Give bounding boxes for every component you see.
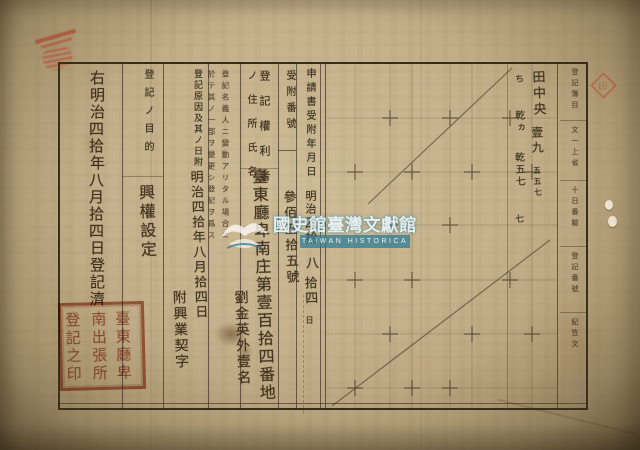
paper-hole bbox=[605, 200, 613, 210]
purpose-label: 登記ノ目的 bbox=[140, 69, 155, 159]
statement-handwritten-year: 四拾 bbox=[87, 121, 105, 155]
row-divider bbox=[560, 120, 586, 121]
application-date-day: 拾四 bbox=[299, 276, 319, 307]
statement-printed: 年 bbox=[88, 155, 104, 172]
watermark-org-name-en: TAIWAN HISTORICA bbox=[302, 238, 408, 245]
margin-text-segment: 登記簿目 bbox=[566, 68, 580, 112]
paper-sheet: 右明治四拾年八月拾四日登記濟 登記ノ目的 興權設定 登記原因及其ノ日附 明治四拾… bbox=[0, 0, 640, 450]
property-note-2: 乾ヵ bbox=[511, 110, 527, 135]
margin-text-segment: 登記番號 bbox=[566, 252, 580, 296]
property-note-3: 乾五七 bbox=[510, 152, 526, 189]
registry-seal: 臺東廳卑 南出張所 登記之印 bbox=[58, 301, 146, 391]
application-date-label: 申請書受附年月日 bbox=[302, 68, 317, 180]
seal-text-column: 南出張所 bbox=[88, 311, 111, 384]
margin-text-segment: 文一上省 bbox=[566, 126, 580, 170]
margin-text-segment: 紀笠文 bbox=[566, 318, 580, 351]
bird-logo-icon bbox=[219, 212, 269, 258]
statement-handwritten-date: 八月拾四 bbox=[87, 172, 105, 240]
margin-text-segment: 十日番驗 bbox=[566, 186, 580, 230]
property-location: 田中央 bbox=[527, 70, 548, 119]
statement-printed: 日登記濟 bbox=[88, 240, 104, 308]
seal-text-column: 登記之印 bbox=[62, 311, 85, 384]
purpose-value: 興權設定 bbox=[133, 184, 160, 261]
registration-statement: 右明治四拾年八月拾四日登記濟 bbox=[86, 70, 107, 308]
row-divider bbox=[122, 176, 163, 177]
watermark-org-name: 國史館臺灣文獻館 bbox=[273, 212, 421, 237]
property-sub-number: 五五七 bbox=[531, 166, 543, 199]
paper-hole bbox=[608, 216, 617, 227]
property-note-4: 七 bbox=[512, 214, 525, 223]
diamond-stamp-character: 印 bbox=[598, 80, 607, 93]
cause-label: 登記原因及其ノ日附 bbox=[192, 69, 205, 168]
watermark-banner: TAIWAN HISTORICA bbox=[300, 235, 410, 248]
row-divider bbox=[560, 246, 586, 247]
taiwan-historica-watermark: 國史館臺灣文獻館 TAIWAN HISTORICA bbox=[213, 206, 425, 260]
column-divider bbox=[163, 64, 164, 408]
column-divider bbox=[557, 64, 558, 408]
statement-printed: 右明治 bbox=[88, 70, 104, 121]
rights-holder-name: 劉金英外壹名 bbox=[230, 290, 253, 387]
row-divider bbox=[278, 150, 296, 151]
seal-text-column: 臺東廳卑 bbox=[112, 310, 135, 383]
diamond-stamp: 印 bbox=[590, 72, 617, 99]
property-lot-number: 壹九 bbox=[528, 126, 546, 157]
cause-value-line2: 附興業契字 bbox=[169, 290, 192, 371]
property-note-1: ち bbox=[512, 74, 525, 83]
application-date-day-suffix: 日 bbox=[304, 316, 315, 324]
row-divider bbox=[560, 180, 586, 181]
receipt-number-label: 受附番號 bbox=[282, 70, 297, 134]
row-divider bbox=[560, 312, 586, 313]
scanned-document: 右明治四拾年八月拾四日登記濟 登記ノ目的 興權設定 登記原因及其ノ日附 明治四拾… bbox=[0, 0, 640, 450]
